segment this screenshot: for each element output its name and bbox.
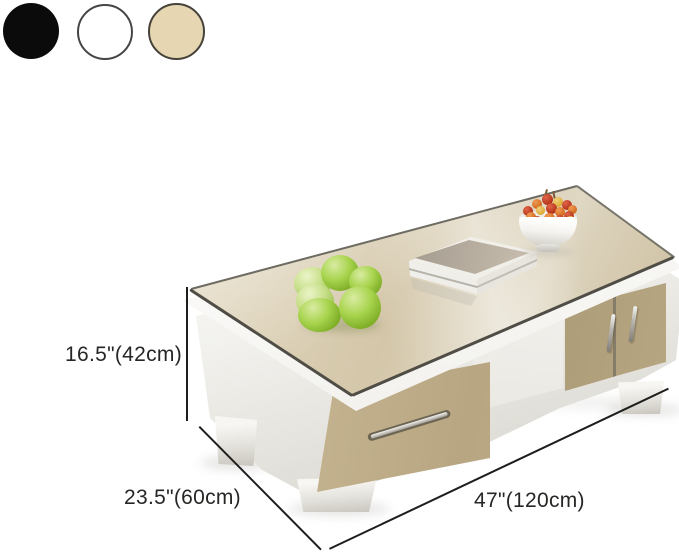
product-dimension-image: 16.5"(42cm) 23.5"(60cm) 47"(120cm) xyxy=(0,0,679,553)
dimension-label-width: 47"(120cm) xyxy=(474,489,585,513)
fruit-bowl-foot xyxy=(536,244,560,252)
color-swatch-beige xyxy=(148,3,205,60)
color-swatch-white xyxy=(77,4,133,60)
cherry xyxy=(536,206,545,215)
dimension-label-height: 16.5"(42cm) xyxy=(58,343,182,367)
table-foot-left xyxy=(213,416,259,466)
green-apple xyxy=(298,298,341,332)
green-apple xyxy=(339,286,381,329)
color-swatch-black xyxy=(3,3,59,59)
dimension-label-depth: 23.5"(60cm) xyxy=(124,486,241,510)
dimension-line-height xyxy=(186,287,188,421)
